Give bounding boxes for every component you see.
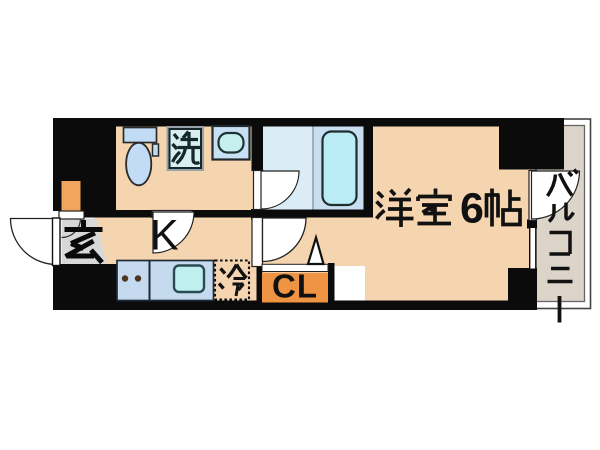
svg-text:K: K [150, 212, 179, 260]
svg-text:6: 6 [460, 185, 484, 233]
svg-text:CL: CL [272, 268, 318, 305]
